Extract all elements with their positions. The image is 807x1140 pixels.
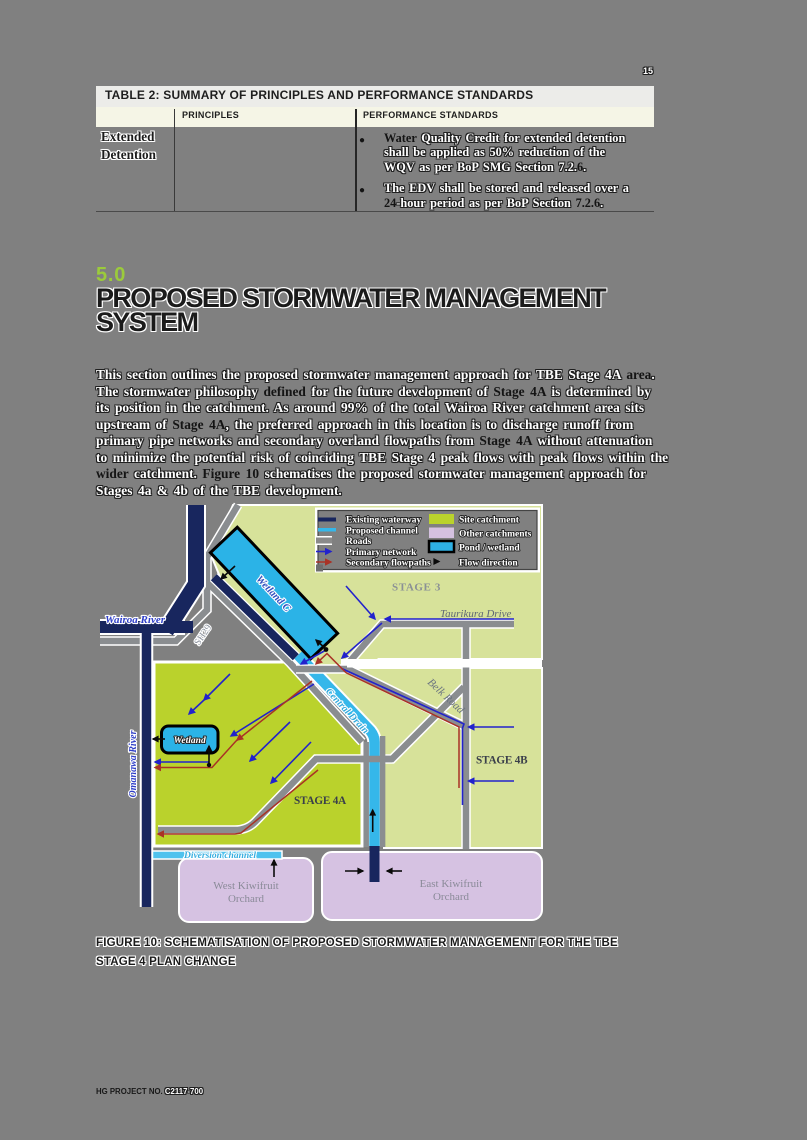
svg-text:Existing waterway: Existing waterway: [346, 516, 421, 526]
svg-text:STAGE 4A: STAGE 4A: [294, 795, 346, 807]
svg-text:Site catchment: Site catchment: [459, 516, 520, 526]
svg-text:Omanawa River: Omanawa River: [128, 730, 139, 797]
svg-text:Secondary flowpaths: Secondary flowpaths: [346, 559, 431, 569]
svg-text:Wetland: Wetland: [174, 736, 206, 746]
svg-text:STAGE 4B: STAGE 4B: [476, 755, 528, 767]
svg-text:STAGE 3: STAGE 3: [392, 582, 441, 594]
svg-text:Roads: Roads: [346, 537, 372, 547]
svg-text:Flow direction: Flow direction: [459, 559, 518, 569]
svg-text:Primary network: Primary network: [346, 548, 417, 558]
svg-text:Wairoa River: Wairoa River: [105, 614, 166, 626]
svg-text:Pond / wetland: Pond / wetland: [459, 544, 520, 554]
svg-text:Other catchments: Other catchments: [459, 530, 532, 540]
svg-text:Proposed channel: Proposed channel: [346, 527, 418, 537]
svg-text:Diversion channel: Diversion channel: [183, 851, 256, 861]
svg-text:Taurikura Drive: Taurikura Drive: [440, 608, 512, 620]
